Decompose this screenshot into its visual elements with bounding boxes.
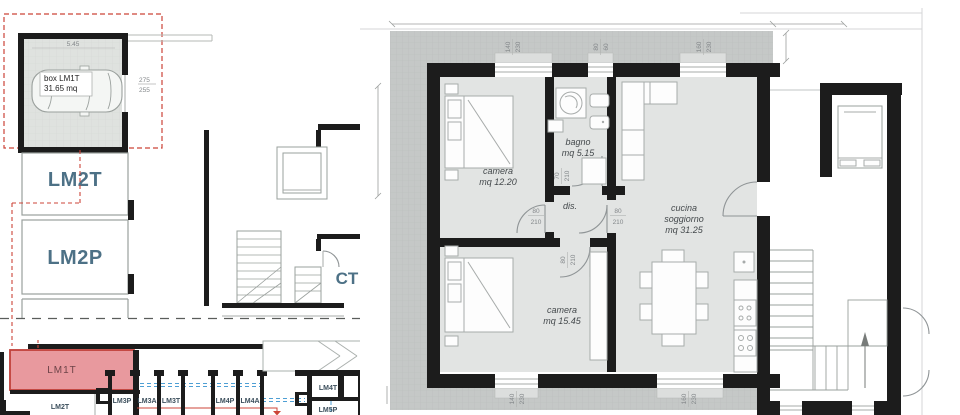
svg-text:70: 70 [554, 172, 561, 180]
svg-text:80: 80 [614, 208, 622, 215]
unit-label-lm2p: LM2P [47, 247, 102, 269]
keyplan-label-lm3a: LM3A [137, 398, 156, 405]
svg-text:210: 210 [564, 170, 571, 181]
room-label-cucina-name1: cucina [671, 203, 697, 213]
svg-text:230: 230 [519, 393, 526, 404]
garage-door-dim-top: 275 [139, 77, 150, 84]
room-label-bagno-area: mq 5.15 [562, 148, 596, 158]
garage-width-dim: 5.45 [67, 41, 80, 48]
keyplan-label-lm2t: LM2T [51, 404, 70, 411]
svg-text:160: 160 [681, 393, 688, 404]
room-label-camera1-name: camera [483, 166, 513, 176]
garage-door-dim-bottom: 255 [139, 87, 150, 94]
keyplan-label-lm3p: LM3P [113, 398, 132, 405]
svg-text:210: 210 [570, 254, 577, 265]
room-label-dis: dis. [563, 201, 577, 211]
room-label-camera2-area: mq 15.45 [543, 316, 582, 326]
keyplan-label-lm4t: LM4T [319, 385, 338, 392]
svg-text:80: 80 [560, 256, 567, 264]
floor-plan-sheet: 5.45 box LM1T 31.65 mq 275 255 LM2T LM2P [0, 0, 960, 415]
garage-label-line2: 31.65 mq [44, 84, 77, 93]
svg-text:60: 60 [603, 43, 610, 51]
elevator [832, 95, 887, 177]
room-label-camera1-area: mq 12.20 [479, 177, 517, 187]
keyplan-label-lm1t: LM1T [47, 365, 77, 376]
keyplan-label-lm3t: LM3T [162, 398, 181, 405]
svg-text:210: 210 [531, 219, 542, 226]
svg-text:80: 80 [532, 208, 540, 215]
svg-text:140: 140 [505, 41, 512, 52]
room-label-cucina-area: mq 31.25 [665, 225, 704, 235]
svg-text:230: 230 [515, 41, 522, 52]
key-plan-strip: LM1T LM2T LM3P LM3A [0, 340, 360, 415]
garage-label: box LM1T 31.65 mq [40, 72, 92, 96]
svg-text:140: 140 [509, 393, 516, 404]
room-label-bagno-name: bagno [565, 137, 590, 147]
garage-door-dim: 275 255 [138, 77, 156, 94]
garage-label-line1: box LM1T [44, 74, 80, 83]
stairs [770, 250, 887, 390]
keyplan-label-lm4a: LM4A [240, 398, 259, 405]
room-label-cucina-name2: soggiorno [664, 214, 704, 224]
svg-text:230: 230 [706, 41, 713, 52]
svg-text:210: 210 [613, 219, 624, 226]
svg-text:230: 230 [691, 393, 698, 404]
unit-label-lm2t: LM2T [48, 169, 102, 191]
unit-label-ct: CT [336, 269, 359, 288]
room-label-camera2-name: camera [547, 305, 577, 315]
keyplan-label-lm5p: LM5P [319, 407, 338, 414]
garage-and-keyplan-panel: 5.45 box LM1T 31.65 mq 275 255 LM2T LM2P [0, 0, 360, 415]
keyplan-label-lm4p: LM4P [216, 398, 235, 405]
svg-text:160: 160 [696, 41, 703, 52]
apartment-plan-panel: camera mq 12.20 bagno mq 5.15 dis. camer… [360, 0, 960, 415]
keyplan-ramp [263, 341, 360, 371]
svg-text:80: 80 [593, 43, 600, 51]
